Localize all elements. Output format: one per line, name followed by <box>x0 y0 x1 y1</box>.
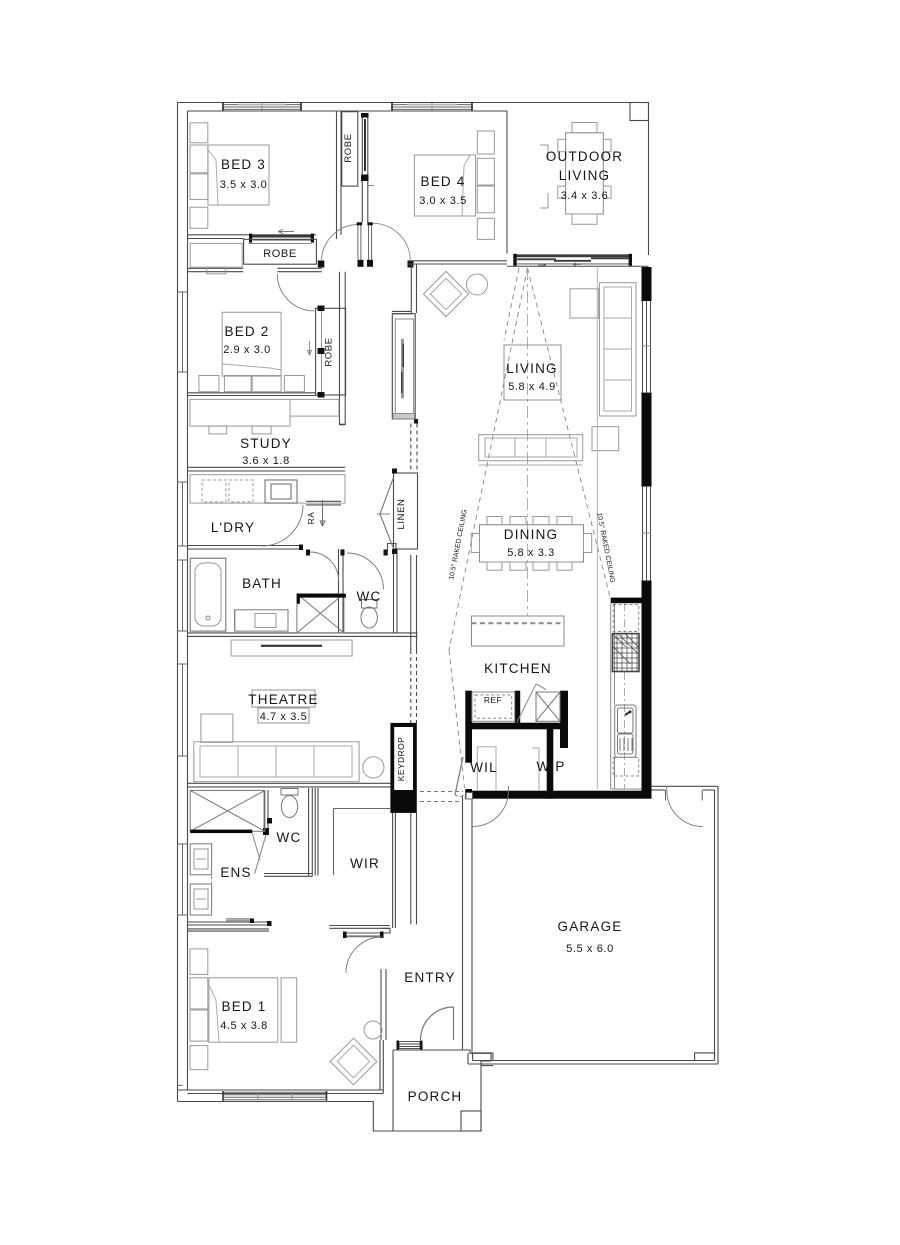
svg-text:4.5 x 3.8: 4.5 x 3.8 <box>220 1020 268 1032</box>
svg-text:LIVING: LIVING <box>559 168 610 183</box>
svg-text:WC: WC <box>277 830 302 845</box>
svg-text:OUTDOOR: OUTDOOR <box>546 149 623 164</box>
svg-text:5.5 x 6.0: 5.5 x 6.0 <box>566 943 614 955</box>
svg-text:KITCHEN: KITCHEN <box>484 661 552 676</box>
svg-text:3.6 x 1.8: 3.6 x 1.8 <box>242 455 290 467</box>
svg-text:BED 4: BED 4 <box>420 174 465 189</box>
svg-text:L'DRY: L'DRY <box>211 520 255 535</box>
svg-text:THEATRE: THEATRE <box>248 692 318 707</box>
svg-text:ROBE: ROBE <box>263 248 297 260</box>
svg-text:REF: REF <box>484 695 502 705</box>
svg-text:3.5 x 3.0: 3.5 x 3.0 <box>220 179 268 191</box>
svg-text:3.4 x 3.6: 3.4 x 3.6 <box>561 190 609 202</box>
svg-text:5.8 x 3.3: 5.8 x 3.3 <box>507 547 555 559</box>
svg-text:10.5° RAKED CEILING: 10.5° RAKED CEILING <box>595 512 616 584</box>
svg-text:WIR: WIR <box>350 856 380 871</box>
svg-text:KEYDROP: KEYDROP <box>396 737 406 781</box>
svg-text:DINING: DINING <box>504 527 558 542</box>
svg-text:RA: RA <box>306 512 316 525</box>
svg-text:BED 2: BED 2 <box>224 324 269 339</box>
svg-text:WIP: WIP <box>536 759 565 774</box>
svg-text:ROBE: ROBE <box>343 133 354 162</box>
svg-text:ROBE: ROBE <box>324 337 335 366</box>
svg-text:4.7 x 3.5: 4.7 x 3.5 <box>260 711 308 723</box>
svg-text:STUDY: STUDY <box>240 436 292 451</box>
svg-text:ENS: ENS <box>220 865 251 880</box>
svg-text:BED 1: BED 1 <box>221 999 266 1014</box>
svg-text:BED 3: BED 3 <box>221 157 266 172</box>
svg-text:PORCH: PORCH <box>408 1089 463 1104</box>
svg-text:3.0 x 3.5: 3.0 x 3.5 <box>419 195 467 207</box>
svg-text:WC: WC <box>357 589 382 604</box>
svg-text:2.9 x 3.0: 2.9 x 3.0 <box>223 344 271 356</box>
svg-text:GARAGE: GARAGE <box>558 919 623 934</box>
svg-text:5.8 x 4.9: 5.8 x 4.9 <box>508 381 556 393</box>
svg-text:WIL: WIL <box>470 760 498 775</box>
svg-text:LINEN: LINEN <box>396 499 407 530</box>
svg-text:LIVING: LIVING <box>506 361 557 376</box>
svg-text:ENTRY: ENTRY <box>404 970 456 985</box>
svg-text:BATH: BATH <box>242 576 282 591</box>
